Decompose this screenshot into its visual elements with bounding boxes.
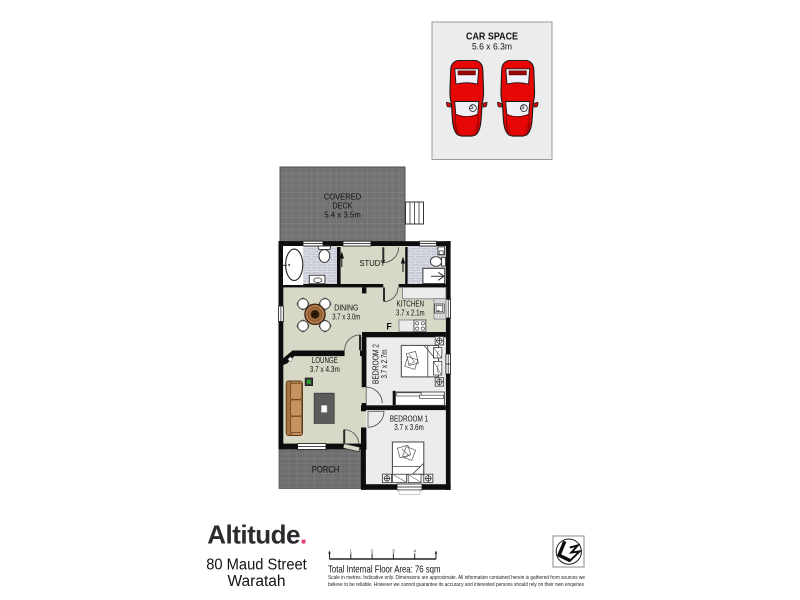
- svg-text:Waratah: Waratah: [227, 573, 285, 590]
- svg-text:80 Maud Street: 80 Maud Street: [206, 557, 307, 574]
- svg-text:3.7 x 3.0m: 3.7 x 3.0m: [332, 312, 360, 321]
- svg-text:3.7 x 3.6m: 3.7 x 3.6m: [394, 423, 424, 432]
- svg-text:BEDROOM 1: BEDROOM 1: [390, 414, 429, 423]
- svg-text:KITCHEN: KITCHEN: [397, 300, 425, 309]
- svg-text:Scale in metres. Indicative on: Scale in metres. Indicative only. Dimens…: [328, 575, 585, 581]
- svg-text:3.7 x 2.7m: 3.7 x 2.7m: [380, 350, 389, 379]
- svg-text:STUDY: STUDY: [359, 258, 385, 268]
- svg-text:DECK: DECK: [333, 201, 354, 210]
- svg-text:BEDROOM 2: BEDROOM 2: [371, 344, 380, 384]
- svg-text:LOUNGE: LOUNGE: [312, 356, 338, 365]
- svg-text:DINING: DINING: [334, 304, 358, 313]
- svg-text:F: F: [386, 322, 392, 332]
- svg-text:3.7 x 2.1m: 3.7 x 2.1m: [396, 308, 425, 317]
- svg-text:PORCH: PORCH: [312, 464, 340, 475]
- svg-text:3.7 x 4.3m: 3.7 x 4.3m: [310, 365, 340, 374]
- svg-text:5.4 x 3.5m: 5.4 x 3.5m: [324, 211, 361, 220]
- svg-text:5.6 x 6.3m: 5.6 x 6.3m: [472, 42, 512, 52]
- svg-text:COVERED: COVERED: [324, 193, 362, 202]
- svg-text:Altitude.: Altitude.: [207, 520, 307, 550]
- svg-text:believe to be reliable. Howeve: believe to be reliable. However we canno…: [328, 582, 584, 588]
